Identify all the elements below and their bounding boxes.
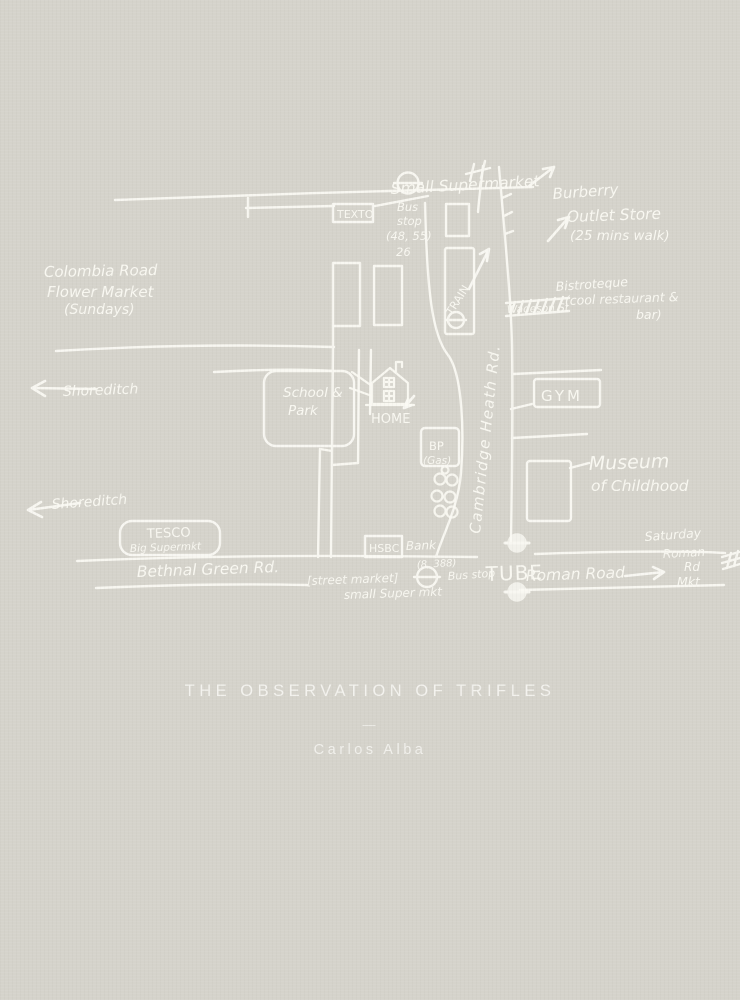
label-saturday-line2: Roman	[662, 545, 705, 561]
train-arrow-icon	[469, 249, 489, 289]
market-stall-circle	[445, 492, 456, 503]
label-hsbc: HSBC	[369, 542, 400, 555]
label-museum-line1: Museum	[588, 450, 669, 475]
label-saturday-line3: Rd	[684, 560, 700, 574]
label-bethnal-green-rd: Bethnal Green Rd.	[137, 558, 280, 581]
street-left-vertical	[318, 326, 333, 557]
label-tesco-line2: Big Supermkt	[130, 540, 203, 555]
building-block-2	[374, 266, 402, 325]
label-street-market: [street market]	[307, 571, 399, 588]
label-bank: Bank	[406, 538, 438, 553]
house-window-upper	[384, 378, 394, 387]
title-divider: —	[0, 717, 740, 732]
road-main-left-edge	[425, 203, 462, 557]
roman-road-arrow-icon	[625, 567, 664, 579]
street-home	[332, 350, 371, 465]
label-saturday-line1: Saturday	[644, 525, 702, 544]
label-shoreditch-upper: Shoreditch	[63, 381, 139, 400]
road-left-upper	[56, 346, 334, 351]
label-home: HOME	[371, 412, 410, 427]
label-gym: GYM	[541, 387, 583, 405]
title-block: THE OBSERVATION OF TRIFLES — Carlos Alba	[0, 682, 740, 758]
market-stall-circle	[432, 491, 443, 502]
label-school-line1: School &	[283, 385, 343, 401]
label-bus-stop-top-line1: Bus	[397, 200, 418, 214]
book-title: THE OBSERVATION OF TRIFLES	[0, 682, 740, 701]
label-colombia-line1: Colombia Road	[44, 261, 158, 281]
label-colombia-line2: Flower Market	[47, 283, 155, 301]
label-tesco: TESCO	[146, 525, 191, 542]
market-stall-circle	[435, 474, 446, 485]
museum-leader-line	[570, 463, 589, 468]
label-saturday-line4: Mkt	[677, 574, 701, 589]
museum-box	[527, 461, 571, 521]
label-museum-line2: of Childhood	[591, 477, 689, 495]
hand-drawn-map: Small Supermarket Burberry Outlet Store …	[0, 0, 740, 1000]
label-burberry: Burberry	[552, 180, 620, 203]
market-stall-circle	[435, 506, 446, 517]
map-arrows	[28, 167, 664, 579]
label-bistroteque-line2: (cool restaurant &	[565, 289, 679, 308]
label-texto: TEXTO	[336, 208, 374, 221]
map-buildings	[120, 204, 600, 557]
label-bus-stop-top-line4: 26	[396, 245, 411, 259]
label-wadeson-st: Wadeson St	[507, 302, 570, 316]
label-roman-road: Roman Road	[526, 564, 626, 585]
author-name: Carlos Alba	[0, 742, 740, 758]
small-supermarket-building	[446, 204, 469, 236]
label-small-super-mkt: small Super mkt	[344, 585, 444, 602]
book-cover: Small Supermarket Burberry Outlet Store …	[0, 0, 740, 1000]
label-burberry-line2: Outlet Store	[567, 205, 662, 226]
building-block-1	[333, 263, 360, 326]
label-cambridge-heath-rd: Cambridge Heath Rd.	[466, 343, 504, 534]
label-colombia-line3: (Sundays)	[64, 302, 135, 318]
label-burberry-line3: (25 mins walk)	[570, 228, 670, 244]
label-small-supermarket: Small Supermarket	[390, 172, 541, 198]
house-chimney	[396, 362, 402, 372]
label-bp: BP	[429, 439, 444, 453]
label-school-line2: Park	[288, 403, 319, 419]
map-labels: Small Supermarket Burberry Outlet Store …	[44, 172, 706, 602]
label-bus-stop-top-line2: stop	[397, 214, 422, 228]
label-bistroteque-line3: bar)	[636, 307, 662, 322]
burberry-arrow-icon	[548, 217, 569, 241]
road-top-lower	[246, 198, 334, 217]
market-stall-circle	[447, 475, 458, 486]
label-shoreditch-lower: Shoreditch	[51, 492, 127, 513]
label-bus-stop-top-line3: (48, 55)	[386, 229, 432, 243]
house-window-lower	[384, 391, 394, 401]
label-bp-gas: (Gas)	[423, 455, 451, 467]
market-stall-circle	[442, 467, 449, 474]
